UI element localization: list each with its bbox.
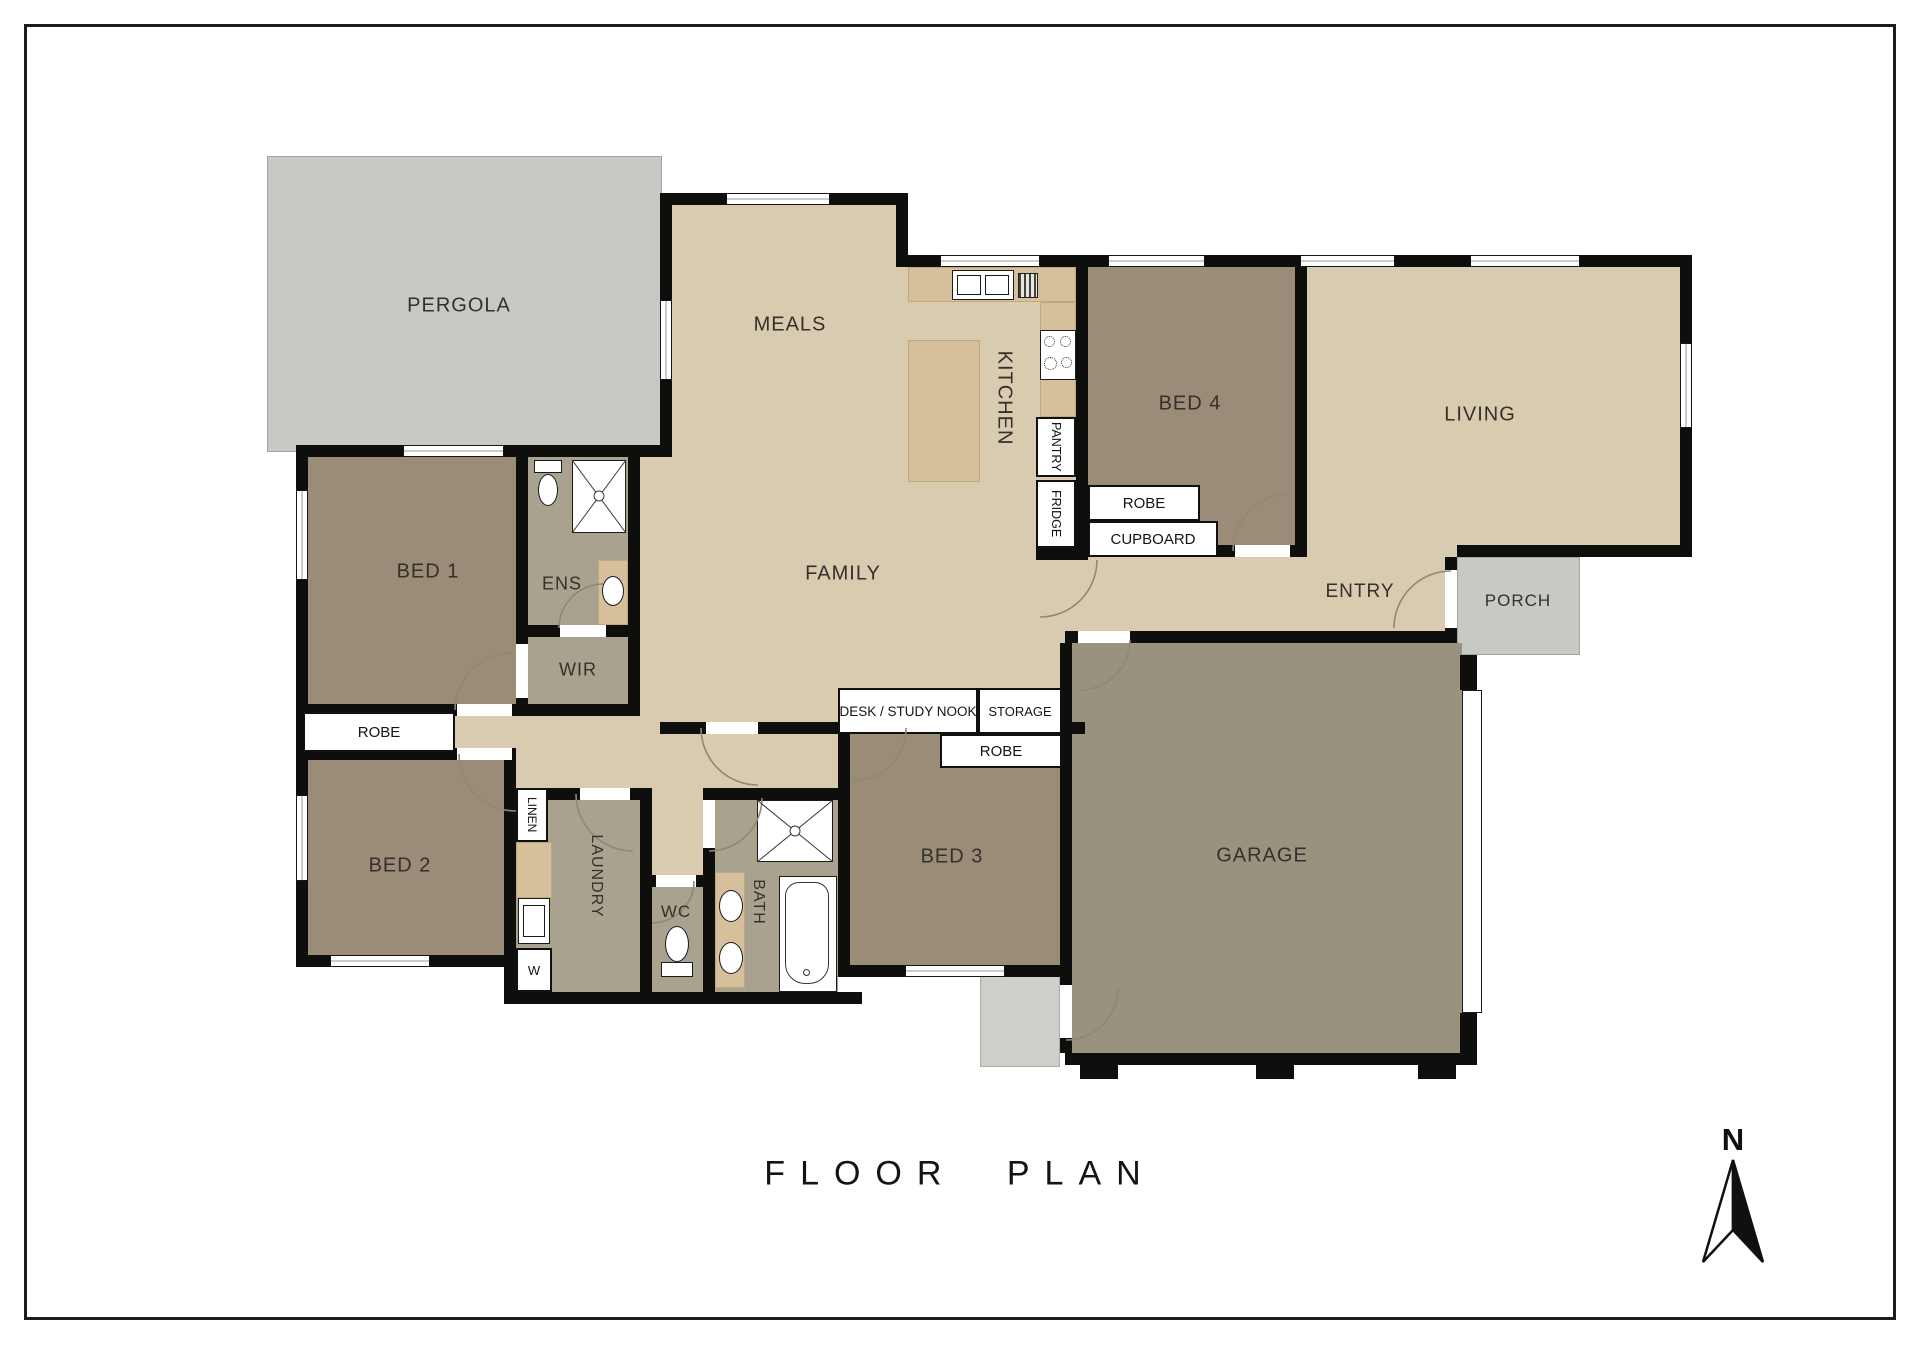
room-label-bed2: BED 2	[369, 855, 432, 878]
room-label-bed4: BED 4	[1159, 393, 1222, 416]
page-title: FLOOR PLAN	[764, 1155, 1155, 1194]
room-label-wir: WIR	[559, 660, 597, 681]
room-label-pergola: PERGOLA	[407, 295, 511, 318]
room-label-living: LIVING	[1444, 404, 1516, 427]
room-label-porch: PORCH	[1485, 591, 1551, 611]
room-label-wc: WC	[661, 902, 691, 922]
room-label-kitchen: KITCHEN	[993, 351, 1016, 446]
room-label-garage: GARAGE	[1216, 845, 1308, 868]
door-swing-arcs	[0, 0, 1920, 1348]
north-arrow-icon	[1688, 1152, 1778, 1272]
room-label-family: FAMILY	[805, 563, 881, 586]
room-label-ens: ENS	[542, 574, 582, 595]
room-label-entry: ENTRY	[1325, 581, 1394, 603]
room-label-meals: MEALS	[754, 314, 827, 337]
room-label-bed3: BED 3	[921, 846, 984, 869]
room-label-bed1: BED 1	[397, 561, 460, 584]
room-label-bath: BATH	[749, 879, 767, 924]
room-label-laundry: LAUNDRY	[587, 834, 605, 917]
floor-plan-canvas: ROBE ROBE CUPBOARD PANTRY FRIDGE LINEN W…	[0, 0, 1920, 1348]
